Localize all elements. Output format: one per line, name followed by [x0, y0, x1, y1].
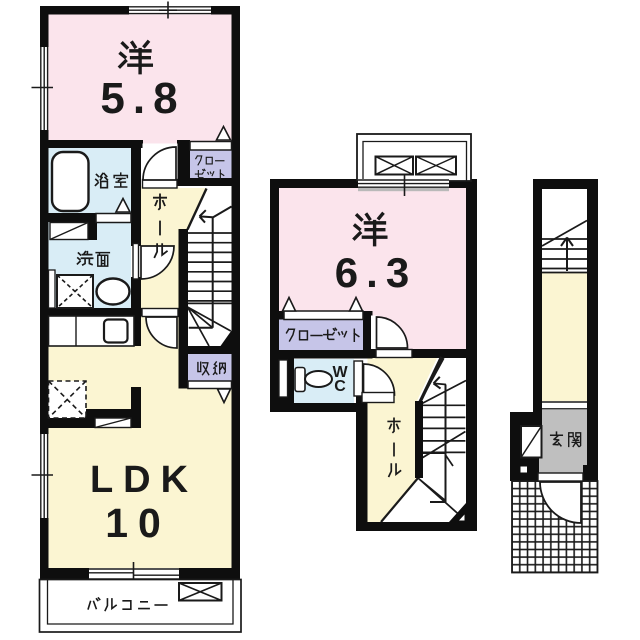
svg-text:5.8: 5.8	[100, 74, 185, 123]
svg-text:6.3: 6.3	[335, 249, 417, 296]
svg-text:C: C	[334, 378, 346, 395]
svg-text:LDK: LDK	[90, 459, 198, 501]
svg-text:10: 10	[105, 500, 171, 546]
